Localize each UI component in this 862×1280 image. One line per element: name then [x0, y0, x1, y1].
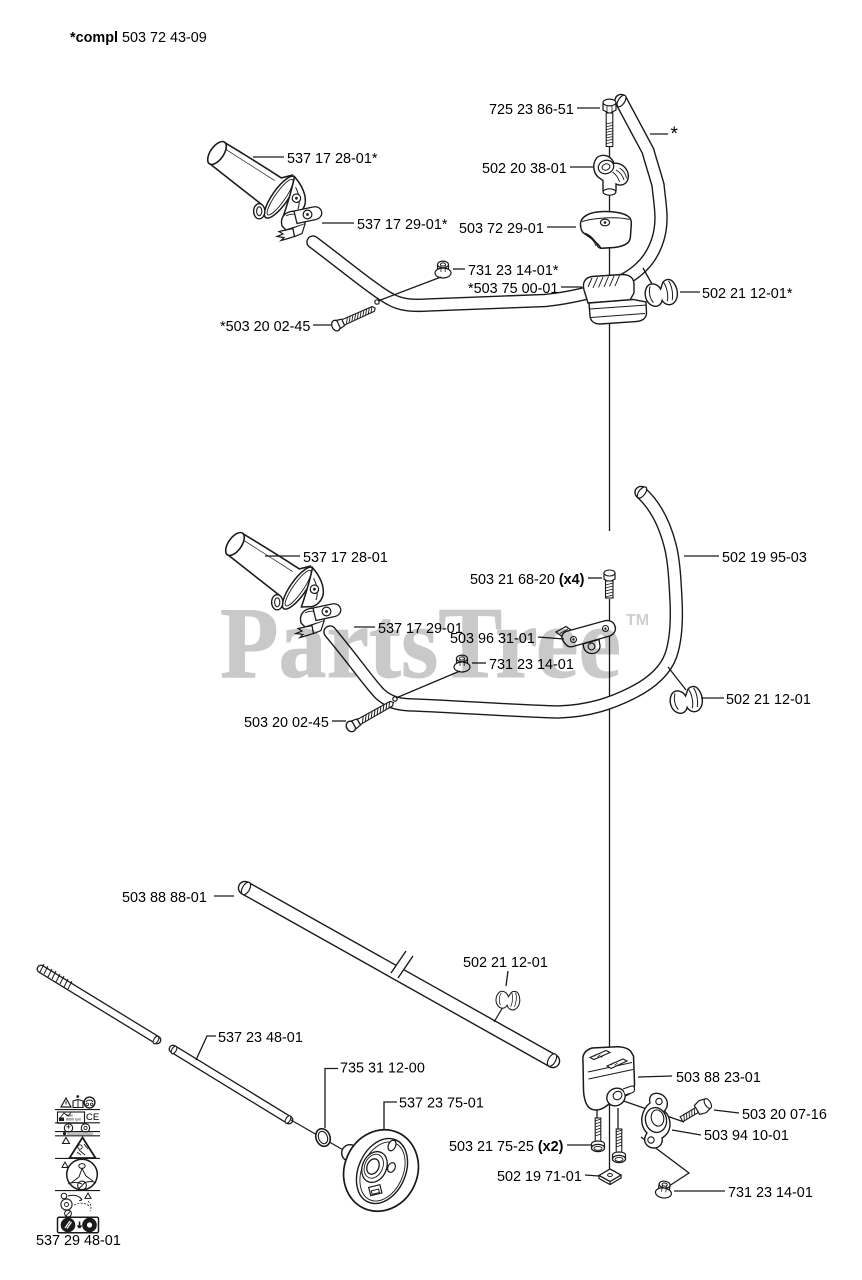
svg-text:503 94 10-01: 503 94 10-01 [704, 1128, 789, 1144]
svg-text:503 21 75-25 (x2): 503 21 75-25 (x2) [449, 1139, 564, 1155]
svg-text:*503 20 02-45: *503 20 02-45 [220, 319, 310, 335]
svg-text:503 21 68-20 (x4): 503 21 68-20 (x4) [470, 572, 585, 588]
svg-text:537 17 28-01*: 537 17 28-01* [287, 151, 378, 167]
svg-text:537 17 29-01*: 537 17 29-01* [357, 217, 448, 233]
svg-text:731 23 14-01: 731 23 14-01 [728, 1185, 813, 1201]
svg-text:502 19 71-01: 502 19 71-01 [497, 1169, 582, 1185]
svg-text:725 23 86-51: 725 23 86-51 [489, 102, 574, 118]
svg-text:731 23 14-01*: 731 23 14-01* [468, 263, 559, 279]
svg-text:502 21 12-01: 502 21 12-01 [463, 955, 548, 971]
svg-text:537 23 75-01: 537 23 75-01 [399, 1096, 484, 1112]
svg-text:9000 rpm: 9000 rpm [66, 1117, 81, 1121]
svg-text:502 21 12-01: 502 21 12-01 [726, 692, 811, 708]
svg-text:CE: CE [86, 1112, 99, 1123]
svg-text:735 31 12-00: 735 31 12-00 [340, 1061, 425, 1077]
svg-text:537 29 48-01: 537 29 48-01 [36, 1233, 121, 1249]
svg-text:503 72 29-01: 503 72 29-01 [459, 221, 544, 237]
svg-text:TM: TM [626, 612, 649, 629]
svg-text:503 88 23-01: 503 88 23-01 [676, 1070, 761, 1086]
svg-text:503 88 88-01: 503 88 88-01 [122, 890, 207, 906]
svg-text:503 20 07-16: 503 20 07-16 [742, 1107, 827, 1123]
svg-text:*: * [671, 124, 679, 145]
svg-text:503 20 02-45: 503 20 02-45 [244, 715, 329, 731]
svg-text:537 17 28-01: 537 17 28-01 [303, 550, 388, 566]
svg-text:PartsTree: PartsTree [220, 587, 621, 700]
svg-text:502 21 12-01*: 502 21 12-01* [702, 286, 793, 302]
svg-text:502 19 95-03: 502 19 95-03 [722, 550, 807, 566]
svg-text:502 20 38-01: 502 20 38-01 [482, 161, 567, 177]
svg-text:*503 75 00-01: *503 75 00-01 [468, 281, 558, 297]
svg-text:*compl 503 72 43-09: *compl 503 72 43-09 [70, 30, 207, 46]
svg-text:537 23 48-01: 537 23 48-01 [218, 1030, 303, 1046]
